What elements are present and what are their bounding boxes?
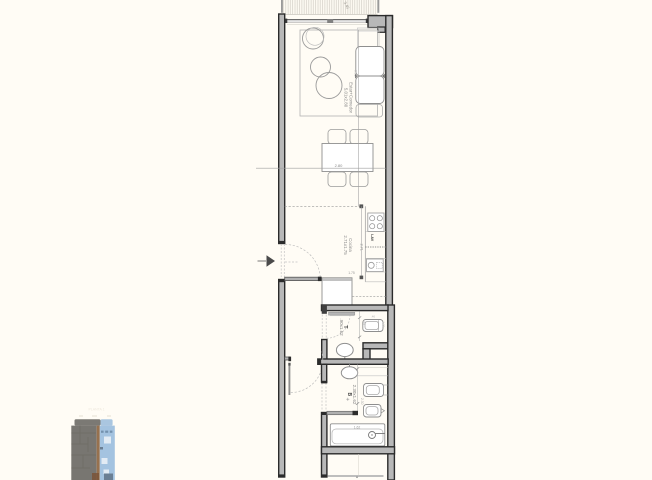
svg-text:B: B (346, 392, 352, 396)
svg-text:1.62: 1.62 (354, 425, 361, 429)
svg-text:PLANTA 1: PLANTA 1 (88, 408, 104, 412)
svg-text:.46: .46 (371, 315, 376, 319)
svg-text:LAV: LAV (370, 234, 374, 242)
svg-text:.90x1.62: .90x1.62 (339, 318, 344, 336)
svg-text:2.71: 2.71 (359, 244, 363, 251)
svg-text:2.71x1.75: 2.71x1.75 (343, 235, 348, 255)
svg-text:2.80: 2.80 (335, 163, 344, 168)
svg-text:5.01x2.80: 5.01x2.80 (344, 88, 349, 108)
svg-text:1.75: 1.75 (348, 271, 355, 275)
svg-text:.90: .90 (362, 321, 366, 326)
svg-text:2.30x1.62: 2.30x1.62 (352, 385, 357, 405)
svg-text:0.95: 0.95 (354, 70, 358, 77)
svg-text:2.30: 2.30 (360, 398, 364, 405)
svg-text:1.20: 1.20 (381, 322, 385, 328)
